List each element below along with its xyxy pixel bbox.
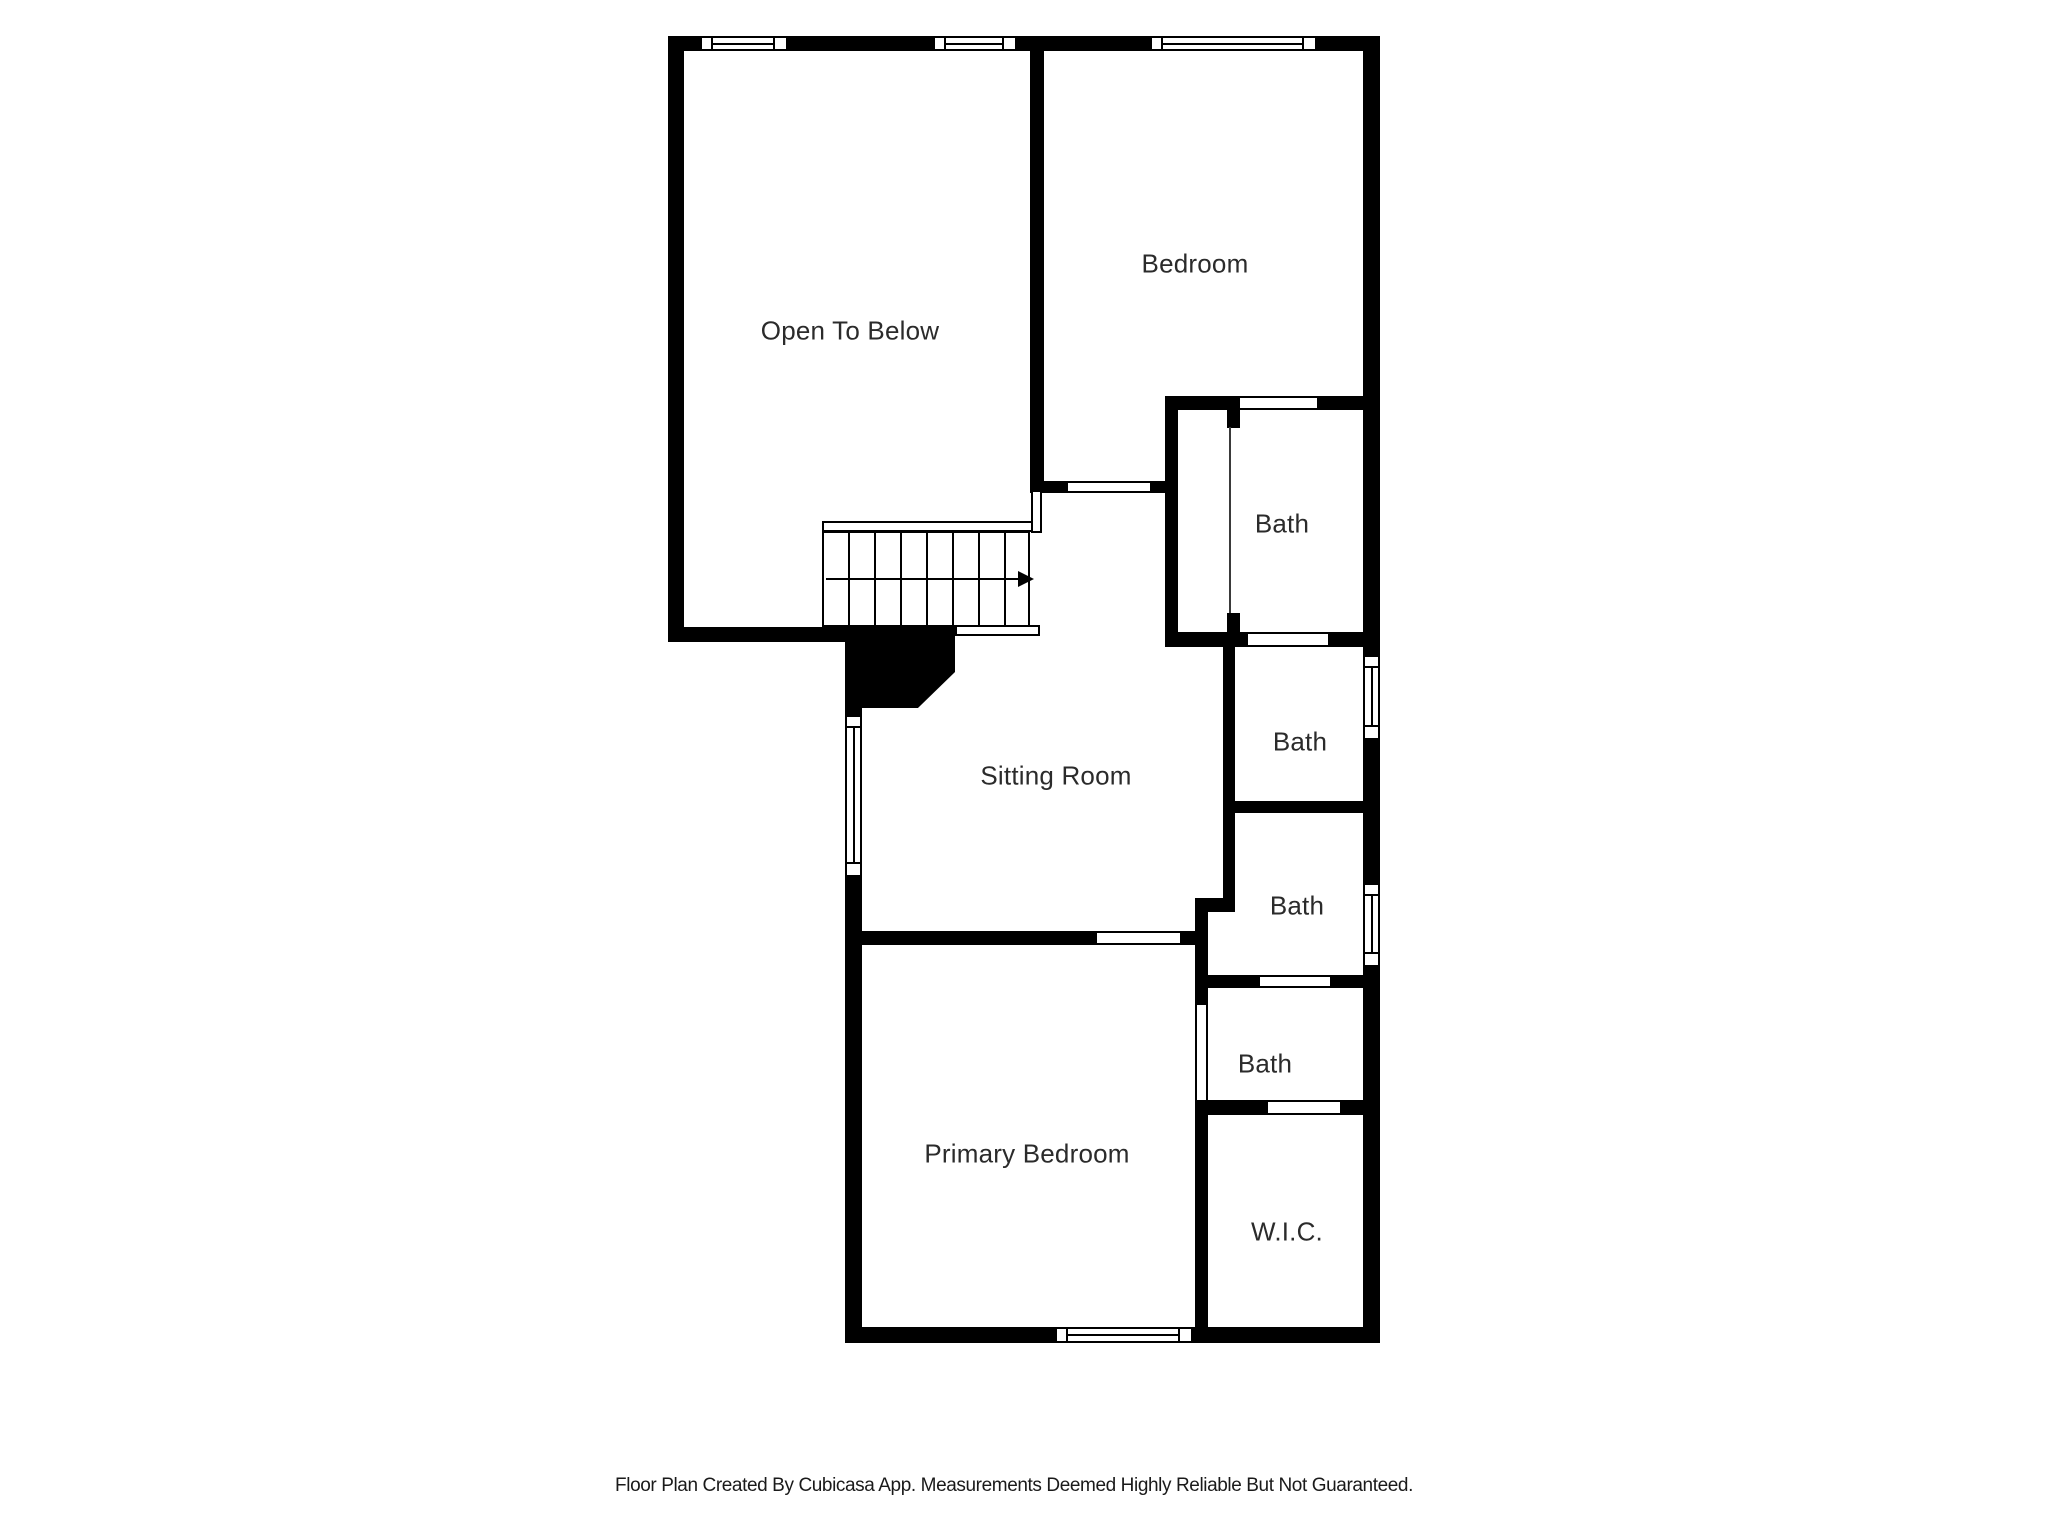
room-label-bath-2: Bath bbox=[1273, 727, 1327, 758]
wall-sitting-primary-divider bbox=[858, 931, 1097, 945]
wall-stub-divider-right bbox=[1178, 931, 1208, 945]
stair-landing bbox=[847, 627, 955, 708]
wall-bath1-jamb-top bbox=[1227, 408, 1240, 428]
door-opening bbox=[1268, 1100, 1340, 1115]
wall-bath4-left-stub bbox=[1195, 975, 1208, 1005]
wall-divider-open-bedroom bbox=[1030, 36, 1044, 493]
wall-bedroom-bottom-b bbox=[1317, 396, 1363, 410]
wall-bath1-bottom-b bbox=[1328, 632, 1363, 647]
wall-jog-bottom-open-to-below bbox=[668, 627, 848, 642]
wall-bath1-jamb-bottom bbox=[1227, 613, 1240, 633]
room-label-open-to-below: Open To Below bbox=[761, 316, 939, 347]
window bbox=[1363, 655, 1380, 740]
window bbox=[845, 715, 862, 877]
wall-corridor-left bbox=[1165, 396, 1178, 647]
wall-bath4-wic-divider-b bbox=[1340, 1100, 1363, 1115]
door-opening bbox=[1248, 632, 1328, 647]
wall-bath3-bath4-divider-b bbox=[1330, 975, 1363, 988]
door-opening bbox=[1260, 975, 1330, 988]
room-label-bath-4: Bath bbox=[1238, 1049, 1292, 1080]
window bbox=[700, 36, 788, 51]
room-label-wic: W.I.C. bbox=[1251, 1217, 1323, 1248]
wall-bath4-wic-divider-a bbox=[1205, 1100, 1268, 1115]
wall-bath2-left bbox=[1223, 640, 1235, 805]
stair-lower-band bbox=[955, 625, 1040, 636]
wall-bath1-bottom-a bbox=[1165, 632, 1248, 647]
floor-plan: Open To Below Bedroom Bath Bath Bath Bat… bbox=[0, 0, 2048, 1536]
door-opening bbox=[1195, 1005, 1208, 1100]
window bbox=[1363, 883, 1380, 967]
room-label-bedroom: Bedroom bbox=[1142, 249, 1249, 280]
wall-bath3-left bbox=[1223, 813, 1235, 903]
room-label-primary-bedroom: Primary Bedroom bbox=[924, 1139, 1129, 1170]
room-label-sitting-room: Sitting Room bbox=[980, 761, 1131, 792]
window bbox=[1150, 36, 1317, 51]
wall-stub-hall-left bbox=[1044, 481, 1068, 493]
window bbox=[933, 36, 1017, 51]
door-opening bbox=[1068, 481, 1150, 493]
stair-direction-arrow-icon bbox=[826, 567, 1038, 591]
pocket-door-line bbox=[1229, 427, 1231, 613]
stair-right-band bbox=[1031, 490, 1042, 533]
room-label-bath-1: Bath bbox=[1255, 509, 1309, 540]
footer-disclaimer: Floor Plan Created By Cubicasa App. Meas… bbox=[615, 1475, 1413, 1497]
wall-wic-left bbox=[1195, 1100, 1208, 1327]
door-opening bbox=[1097, 931, 1180, 945]
room-label-bath-3: Bath bbox=[1270, 891, 1324, 922]
wall-left-upper-exterior bbox=[668, 36, 684, 642]
door-opening bbox=[1240, 396, 1317, 410]
wall-bath2-bath3-divider bbox=[1223, 801, 1363, 813]
window bbox=[1055, 1327, 1193, 1343]
wall-bath3-jog bbox=[1195, 898, 1235, 912]
wall-bath3-bath4-divider-a bbox=[1205, 975, 1260, 988]
